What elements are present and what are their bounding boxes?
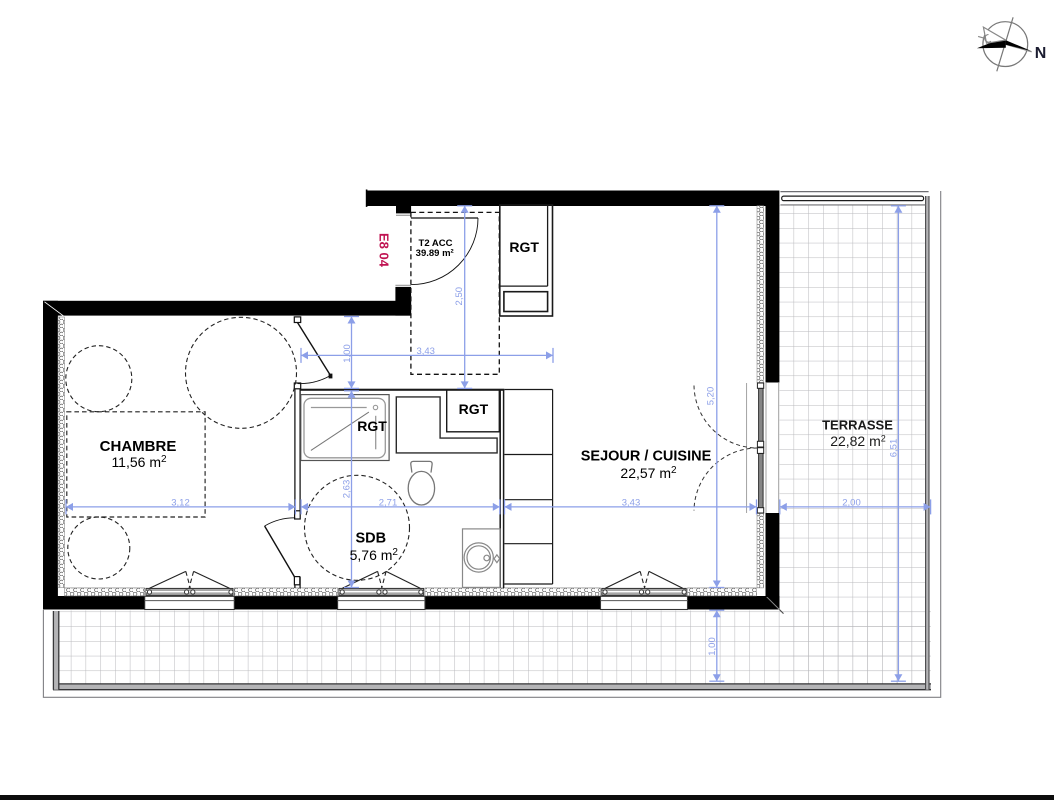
svg-text:CHAMBRE: CHAMBRE — [100, 438, 177, 455]
svg-text:1,00: 1,00 — [707, 637, 718, 656]
svg-text:SDB: SDB — [355, 530, 386, 546]
svg-text:1,00: 1,00 — [342, 344, 353, 363]
svg-text:2,63: 2,63 — [342, 480, 353, 499]
svg-text:RGT: RGT — [509, 239, 539, 255]
svg-text:5,76 m2: 5,76 m2 — [350, 547, 399, 563]
svg-text:E8 04: E8 04 — [377, 233, 392, 268]
svg-text:2,50: 2,50 — [454, 287, 465, 306]
svg-text:2,00: 2,00 — [842, 497, 861, 508]
svg-text:22,82 m2: 22,82 m2 — [830, 433, 886, 449]
svg-text:N: N — [1035, 45, 1047, 62]
svg-text:5,20: 5,20 — [706, 387, 717, 406]
svg-text:3,43: 3,43 — [416, 346, 435, 357]
svg-text:3,43: 3,43 — [622, 497, 641, 508]
svg-text:6,51: 6,51 — [889, 439, 900, 458]
svg-text:SEJOUR / CUISINE: SEJOUR / CUISINE — [581, 449, 712, 465]
svg-text:39.89 m²: 39.89 m² — [416, 248, 454, 259]
svg-text:RGT: RGT — [357, 418, 387, 434]
svg-text:2,71: 2,71 — [379, 497, 398, 508]
svg-text:RGT: RGT — [459, 401, 489, 417]
svg-text:22,57 m2: 22,57 m2 — [620, 465, 677, 481]
svg-text:11,56 m2: 11,56 m2 — [111, 454, 167, 470]
svg-text:3,12: 3,12 — [171, 497, 190, 508]
svg-text:TERRASSE: TERRASSE — [822, 417, 893, 432]
